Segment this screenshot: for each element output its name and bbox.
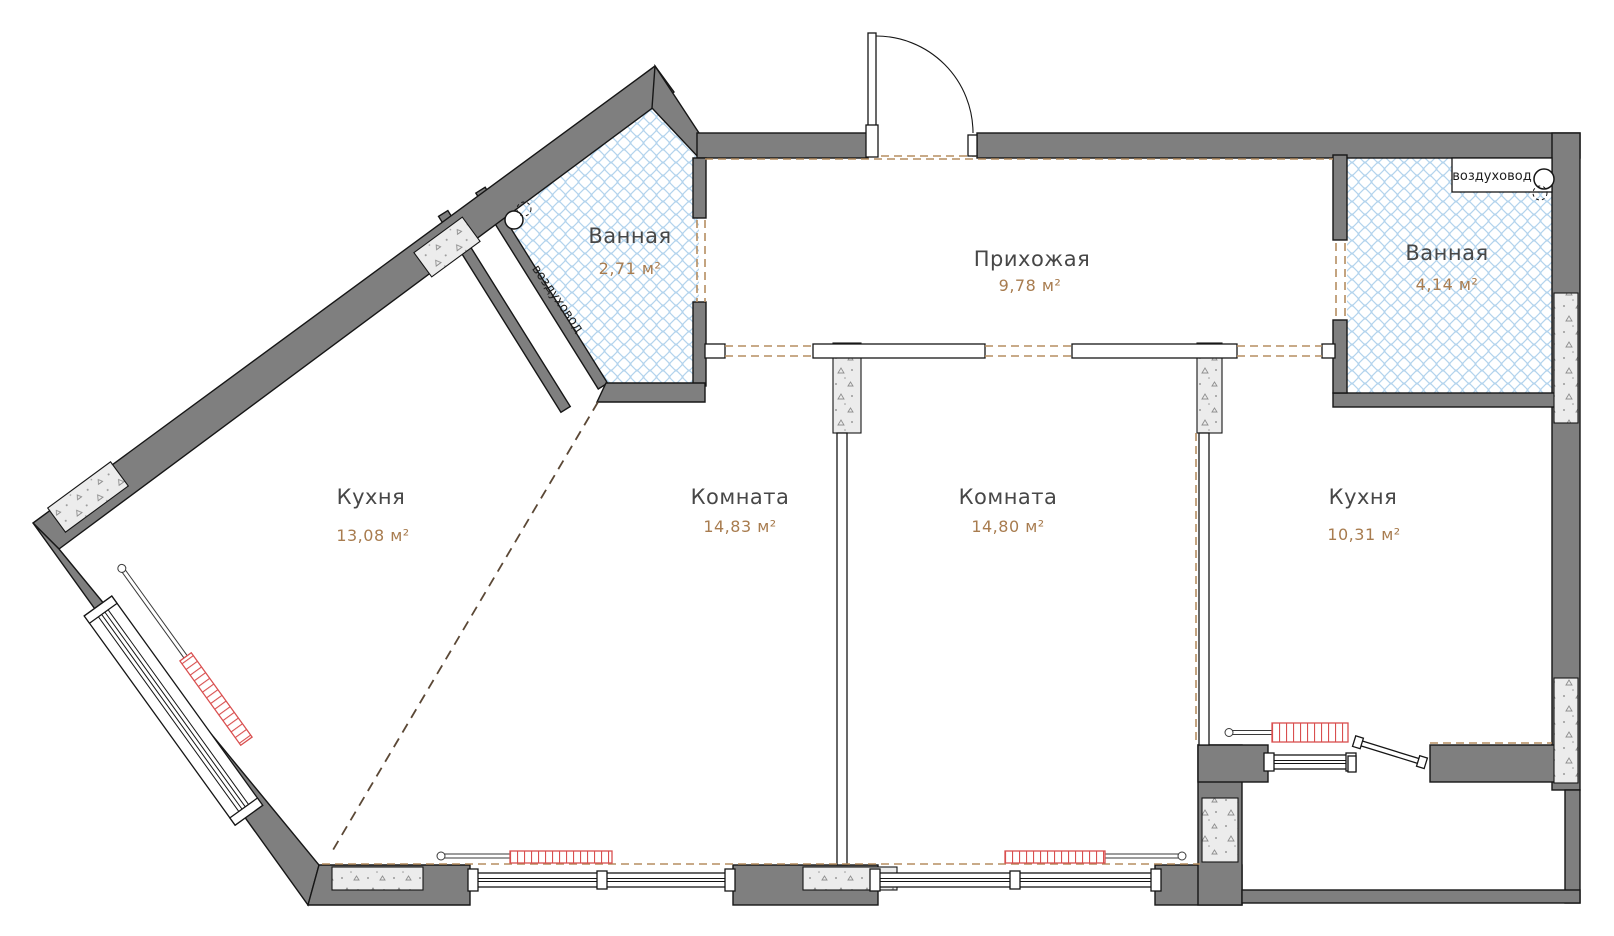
corridor-wall-segment-1	[813, 344, 985, 358]
corridor-wall-stub-left	[705, 344, 725, 358]
pipe-valve	[437, 852, 445, 860]
window-room-right	[870, 869, 1161, 891]
room-name: Комната	[959, 485, 1058, 509]
wall-bathroom-left-right-upper	[693, 158, 706, 218]
balcony-door-leaf	[1356, 740, 1425, 766]
vent-icon-right	[1534, 169, 1554, 189]
pipe-valve	[1225, 729, 1233, 737]
radiator-pipe	[1105, 854, 1179, 858]
wall-top-right-of-entrance	[977, 133, 1580, 158]
window-kitchen-left-diagonal	[84, 596, 262, 825]
insulation-patch	[1554, 293, 1578, 423]
wall-kitchen-right-bottom-b	[1430, 745, 1556, 782]
corridor-wall-segment-2	[1072, 344, 1237, 358]
floor-plan-page: воздуховод воздуховод	[0, 0, 1614, 936]
radiator-room-left	[437, 851, 612, 863]
wall-balcony-right	[1565, 790, 1580, 903]
window-kitchen-right	[1264, 753, 1356, 771]
room-label-hallway: Прихожая 9,78 м²	[974, 247, 1090, 295]
room-name: Комната	[691, 485, 790, 509]
corridor-wall-stub-right	[1322, 344, 1335, 358]
room-name: Ванная	[588, 224, 671, 248]
room-label-kitchen-right: Кухня 10,31 м²	[1327, 485, 1400, 544]
wall-bathroom-right-bottom	[1333, 393, 1556, 407]
room-name: Кухня	[1329, 485, 1398, 509]
room-label-kitchen-left: Кухня 13,08 м²	[336, 485, 409, 545]
room-area: 9,78 м²	[999, 276, 1062, 295]
radiator-room-right	[1005, 851, 1186, 863]
dashed-kitchen-diagonal	[330, 402, 598, 855]
entrance-door	[866, 33, 977, 157]
wall-bathroom-left-right-lower	[693, 302, 706, 386]
air-duct-right-label: воздуховод	[1452, 169, 1531, 184]
room-label-room-left: Комната 14,83 м²	[691, 485, 790, 536]
room-area: 10,31 м²	[1327, 525, 1400, 544]
room-name: Кухня	[337, 485, 406, 509]
insulation-patch	[332, 867, 423, 890]
radiator-pipe	[444, 854, 510, 858]
radiators	[114, 561, 1348, 863]
entrance-door-hinge	[866, 125, 878, 157]
entrance-door-arc	[876, 36, 973, 133]
room-area: 2,71 м²	[599, 259, 662, 278]
partition-room1-room2	[837, 433, 847, 865]
wall-bathroom-left-bottom	[597, 383, 705, 402]
wall-top-left-of-entrance	[697, 133, 868, 158]
room-label-room-right: Комната 14,80 м²	[959, 485, 1058, 536]
insulation-patch	[1554, 678, 1578, 783]
room-area: 14,80 м²	[971, 517, 1044, 536]
radiator-pipe	[1232, 731, 1272, 735]
wall-kitchen-right-bottom-a	[1198, 745, 1268, 782]
room-name: Ванная	[1405, 241, 1488, 265]
floor-plan: воздуховод воздуховод	[0, 0, 1614, 936]
wall-balcony-bottom	[1242, 890, 1580, 903]
vent-icon-left	[505, 211, 523, 229]
room-name: Прихожая	[974, 247, 1090, 271]
pipe-valve	[1178, 852, 1186, 860]
balcony-door-jamb	[1348, 756, 1356, 772]
balcony-door	[1353, 736, 1428, 769]
partition-room2-kitchen	[1199, 433, 1209, 745]
radiator-kitchen-right	[1225, 723, 1348, 742]
entrance-door-jamb	[968, 135, 977, 156]
window-room-left	[468, 869, 735, 891]
room-area: 14,83 м²	[703, 517, 776, 536]
insulation-patch	[1202, 798, 1238, 862]
room-area: 13,08 м²	[336, 526, 409, 545]
dashed-bathroom-right-door	[1336, 243, 1345, 318]
wall-bathroom-right-left-upper	[1333, 155, 1347, 240]
room-area: 4,14 м²	[1416, 275, 1479, 294]
entrance-door-leaf	[868, 33, 876, 133]
